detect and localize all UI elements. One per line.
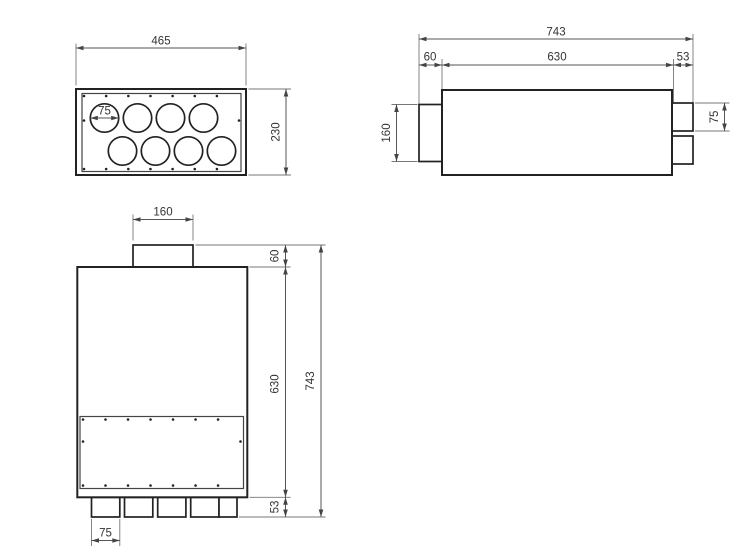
- duct-hole: [123, 104, 151, 132]
- dim-label-inlet-width: 160: [153, 207, 172, 219]
- dim-label-spigot-width: 75: [99, 528, 112, 540]
- dim-label-right-collar: 53: [677, 52, 690, 64]
- dim-label-left-collar: 60: [424, 52, 437, 64]
- dim-label-spigot-length: 53: [270, 501, 282, 514]
- duct-hole: [156, 104, 184, 132]
- dim-label-spigot-height: 75: [709, 111, 721, 124]
- duct-hole: [141, 137, 169, 165]
- duct-hole: [108, 137, 136, 165]
- dim-label-panel-width: 465: [151, 36, 170, 48]
- dim-label-total-length: 743: [546, 27, 565, 39]
- dim-label-hole-diameter: 75: [98, 106, 111, 118]
- outlet-spigot-lower: [672, 136, 693, 164]
- dim-label-body-length: 630: [547, 52, 566, 64]
- dim-label-body-height: 630: [270, 374, 282, 393]
- technical-drawing-canvas: 465 230 75 743 60 630 53 160 75 160 60 6…: [0, 0, 750, 558]
- body-outline-side: [442, 90, 672, 175]
- dim-label-total-height: 743: [305, 371, 317, 390]
- bottom-spigot-rear-row: [219, 497, 237, 517]
- dim-label-inlet-height: 160: [381, 123, 393, 142]
- body-outline-front: [77, 267, 247, 497]
- duct-hole: [189, 104, 217, 132]
- bottom-spigot: [125, 497, 153, 517]
- duct-hole: [174, 137, 202, 165]
- bottom-spigot: [158, 497, 186, 517]
- duct-hole: [207, 137, 235, 165]
- inlet-spigot-front: [133, 245, 193, 267]
- front-view: [77, 245, 247, 517]
- bottom-spigot: [191, 497, 219, 517]
- top-view-hole-panel: [76, 89, 246, 175]
- bottom-spigot: [92, 497, 120, 517]
- outlet-spigot-upper: [672, 103, 693, 131]
- inlet-spigot-side: [419, 105, 442, 162]
- dim-label-panel-height: 230: [271, 122, 283, 141]
- side-view: [419, 90, 693, 175]
- dim-label-collar-height: 60: [270, 250, 282, 263]
